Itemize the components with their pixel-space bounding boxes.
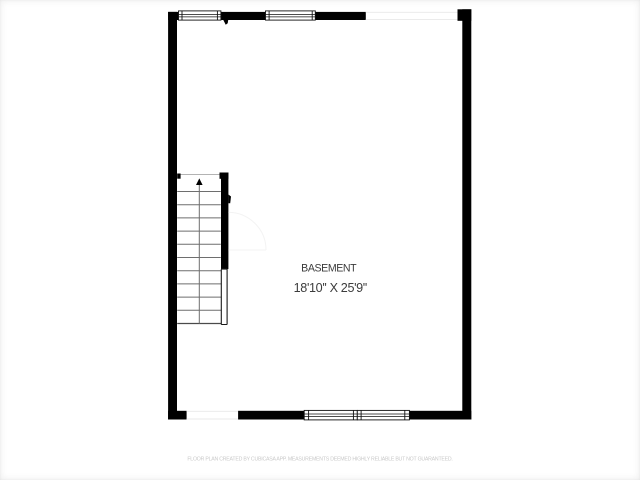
svg-text:18'10'' X 25'9'': 18'10'' X 25'9'' xyxy=(294,281,367,295)
svg-text:BASEMENT: BASEMENT xyxy=(301,262,357,274)
svg-text:FLOOR PLAN CREATED BY CUBICASA: FLOOR PLAN CREATED BY CUBICASA APP. MEAS… xyxy=(187,457,452,463)
